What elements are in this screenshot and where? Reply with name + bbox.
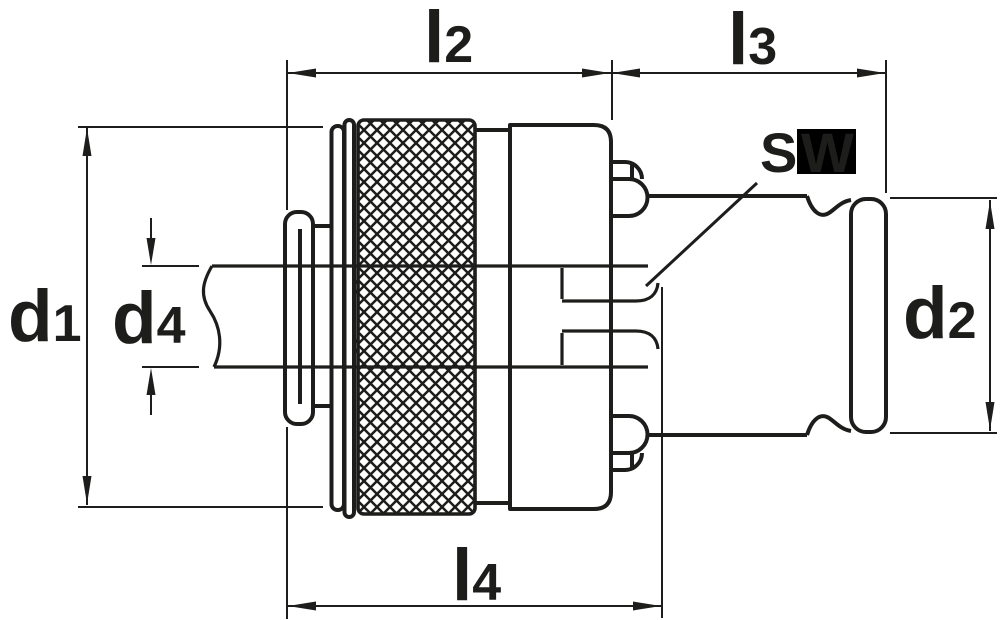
- shank-end-ring: [851, 199, 886, 432]
- l3-arrowhead-left: [612, 69, 640, 78]
- label-l2: l2: [424, 0, 473, 78]
- main-body: [510, 125, 611, 509]
- l2-arrowhead-right: [582, 69, 610, 78]
- d1-arrowhead-top: [83, 128, 92, 156]
- detent-pin-lower-lobe: [611, 416, 648, 453]
- label-d1: d1: [8, 276, 82, 357]
- label-d4: d4: [112, 278, 186, 359]
- dimension-labels: l2 l3 l4 d1 d4 d2 S W: [8, 0, 977, 616]
- label-l3: l3: [728, 0, 777, 80]
- shank-lines: [648, 196, 807, 435]
- l4-arrowhead-left: [288, 602, 316, 611]
- tap-adapter-drawing: l2 l3 l4 d1 d4 d2 S W: [0, 0, 1000, 620]
- technical-drawing-page: l2 l3 l4 d1 d4 d2 S W: [0, 0, 1000, 620]
- sleeve-lines: [475, 130, 510, 503]
- d1-arrowhead-bottom: [83, 476, 92, 504]
- clip-to-flange-steps: [313, 226, 331, 406]
- detent-pin-lower-step: [611, 453, 642, 470]
- d4-arrowhead-top: [147, 238, 156, 265]
- tap-break-squiggle: [203, 266, 219, 367]
- label-l4: l4: [452, 535, 501, 616]
- shank-groove-bottom: [807, 416, 851, 435]
- detent-pin-upper-lobe: [611, 179, 648, 216]
- flange-plate-front: [332, 126, 345, 510]
- d2-arrowhead-bottom: [986, 402, 995, 430]
- d2-arrowhead-top: [986, 201, 995, 229]
- shank-groove-top: [807, 196, 851, 215]
- sw-leader-line: [646, 183, 757, 286]
- l3-arrowhead-right: [857, 69, 885, 78]
- l4-arrowhead-right: [633, 602, 661, 611]
- knurled-grip: [358, 120, 475, 514]
- flange-plate-rear: [345, 120, 355, 517]
- detent-pin-upper-step: [611, 162, 642, 179]
- label-d2: d2: [903, 273, 977, 354]
- d4-arrowhead-bottom: [147, 368, 156, 395]
- l2-arrowhead-left: [288, 69, 316, 78]
- label-sw-w: W: [801, 121, 854, 184]
- label-sw-s: S: [760, 121, 797, 184]
